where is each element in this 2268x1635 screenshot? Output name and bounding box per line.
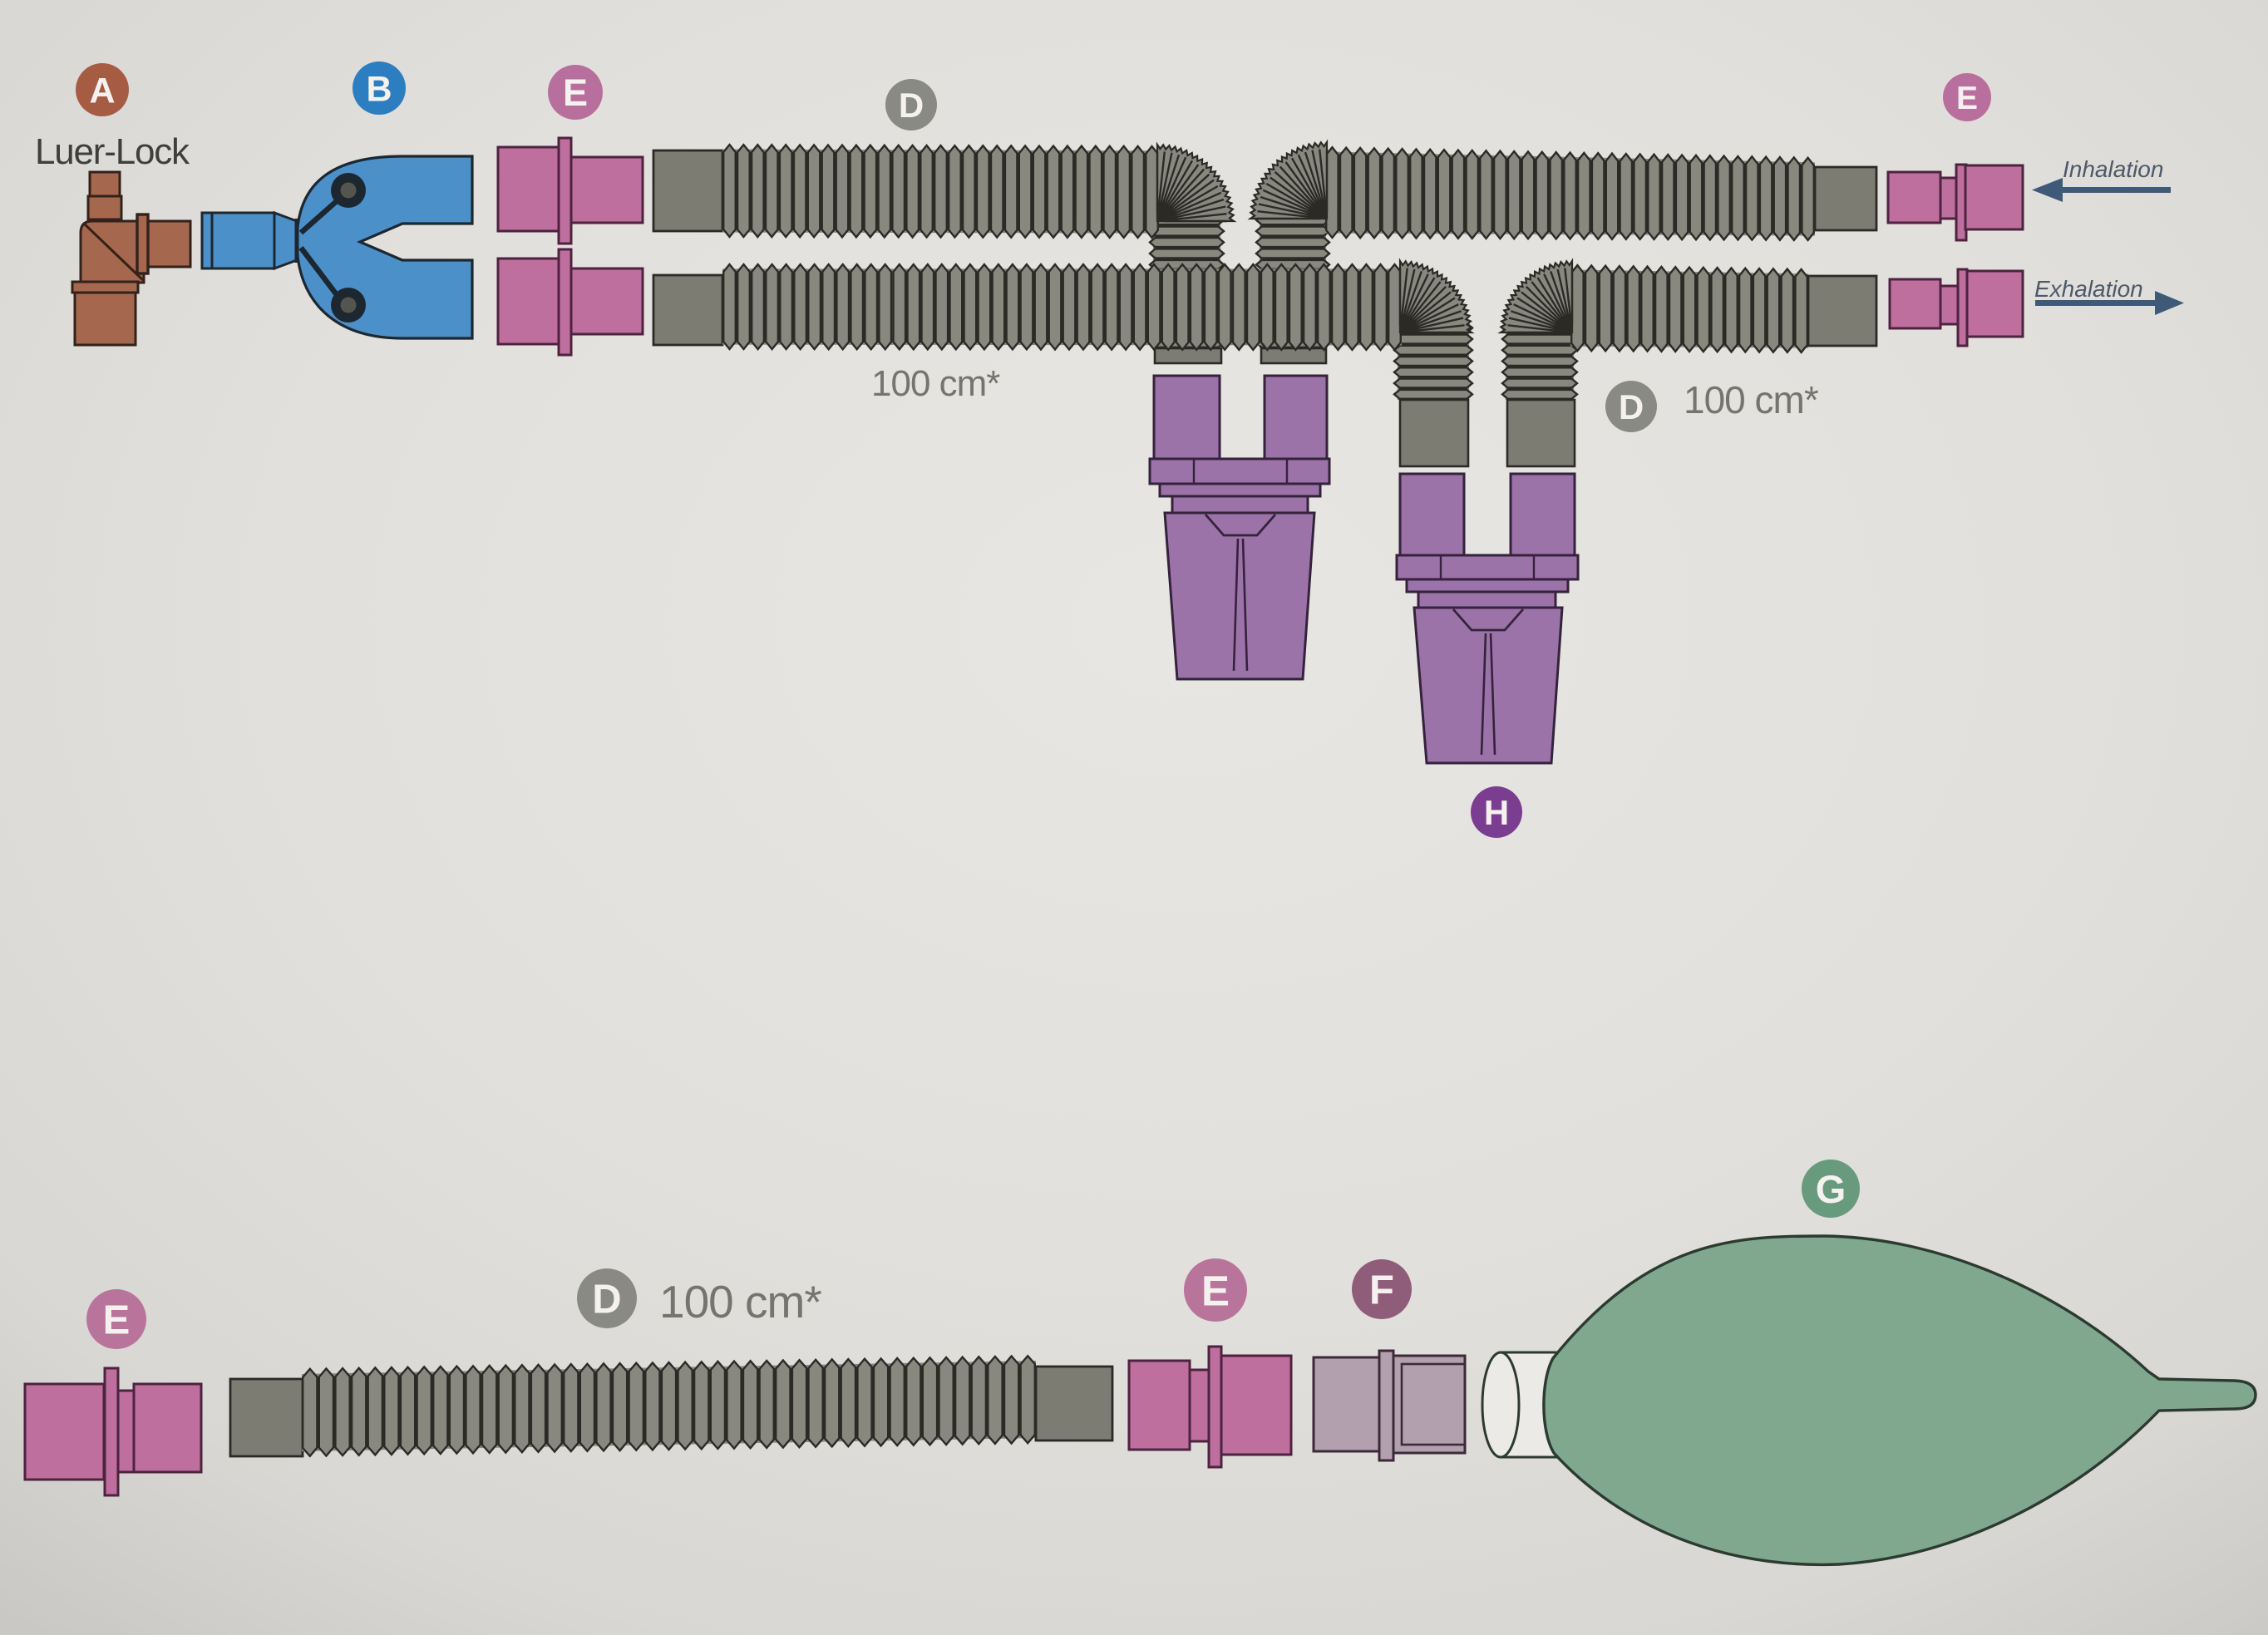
svg-text:E: E (103, 1298, 131, 1343)
svg-text:B: B (366, 69, 392, 109)
svg-text:100 cm*: 100 cm* (871, 363, 1000, 404)
svg-text:Inhalation: Inhalation (2063, 156, 2163, 182)
svg-text:E: E (1956, 81, 1978, 116)
svg-text:100 cm*: 100 cm* (1684, 378, 1819, 421)
svg-text:Exhalation: Exhalation (2034, 276, 2143, 302)
svg-text:E: E (563, 71, 588, 114)
svg-text:E: E (1201, 1267, 1230, 1314)
svg-text:D: D (899, 86, 924, 125)
svg-text:D: D (592, 1278, 621, 1322)
svg-text:H: H (1484, 793, 1509, 832)
svg-text:Luer-Lock: Luer-Lock (35, 131, 190, 172)
svg-text:F: F (1369, 1268, 1394, 1313)
svg-text:100 cm*: 100 cm* (659, 1276, 821, 1327)
svg-text:D: D (1619, 387, 1644, 426)
svg-text:A: A (89, 71, 115, 111)
svg-text:G: G (1816, 1167, 1846, 1211)
